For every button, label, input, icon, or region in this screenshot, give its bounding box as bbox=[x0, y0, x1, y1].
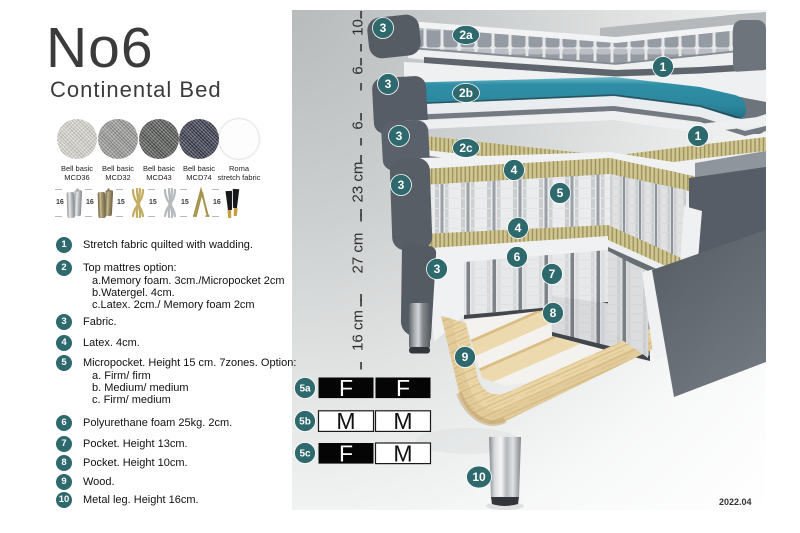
svg-text:F: F bbox=[339, 375, 353, 401]
svg-text:9: 9 bbox=[462, 350, 469, 364]
svg-text:M: M bbox=[393, 408, 412, 434]
svg-text:3: 3 bbox=[398, 178, 405, 192]
svg-text:27 cm: 27 cm bbox=[350, 233, 367, 274]
svg-text:1: 1 bbox=[660, 60, 667, 74]
svg-text:4: 4 bbox=[511, 163, 518, 177]
svg-text:F: F bbox=[339, 440, 353, 466]
svg-text:15: 15 bbox=[149, 199, 157, 206]
svg-text:15: 15 bbox=[117, 199, 125, 206]
svg-text:4: 4 bbox=[515, 221, 522, 235]
svg-text:3: 3 bbox=[396, 129, 403, 143]
svg-text:5c: 5c bbox=[299, 449, 311, 460]
svg-text:10: 10 bbox=[472, 470, 486, 484]
svg-text:16 cm: 16 cm bbox=[350, 310, 367, 351]
svg-text:5: 5 bbox=[557, 186, 564, 200]
svg-text:16: 16 bbox=[213, 199, 221, 206]
svg-text:3: 3 bbox=[434, 262, 441, 276]
svg-text:M: M bbox=[336, 408, 355, 434]
svg-text:23 cm: 23 cm bbox=[350, 162, 367, 203]
svg-text:3: 3 bbox=[380, 21, 387, 35]
svg-text:1: 1 bbox=[695, 129, 702, 143]
svg-text:6: 6 bbox=[350, 121, 367, 129]
svg-text:3: 3 bbox=[385, 77, 392, 91]
svg-text:5b: 5b bbox=[299, 417, 311, 428]
svg-text:2c: 2c bbox=[459, 141, 473, 155]
svg-text:5a: 5a bbox=[299, 384, 311, 395]
svg-text:6: 6 bbox=[514, 250, 521, 264]
svg-text:2a: 2a bbox=[459, 28, 473, 42]
svg-text:M: M bbox=[393, 440, 412, 466]
svg-text:7: 7 bbox=[549, 267, 556, 281]
svg-text:F: F bbox=[396, 375, 410, 401]
svg-text:10: 10 bbox=[350, 19, 367, 36]
svg-text:15: 15 bbox=[181, 199, 189, 206]
svg-text:16: 16 bbox=[86, 199, 94, 206]
svg-text:16: 16 bbox=[56, 199, 64, 206]
svg-text:6: 6 bbox=[350, 66, 367, 74]
svg-text:8: 8 bbox=[550, 306, 557, 320]
svg-text:2b: 2b bbox=[459, 86, 473, 100]
